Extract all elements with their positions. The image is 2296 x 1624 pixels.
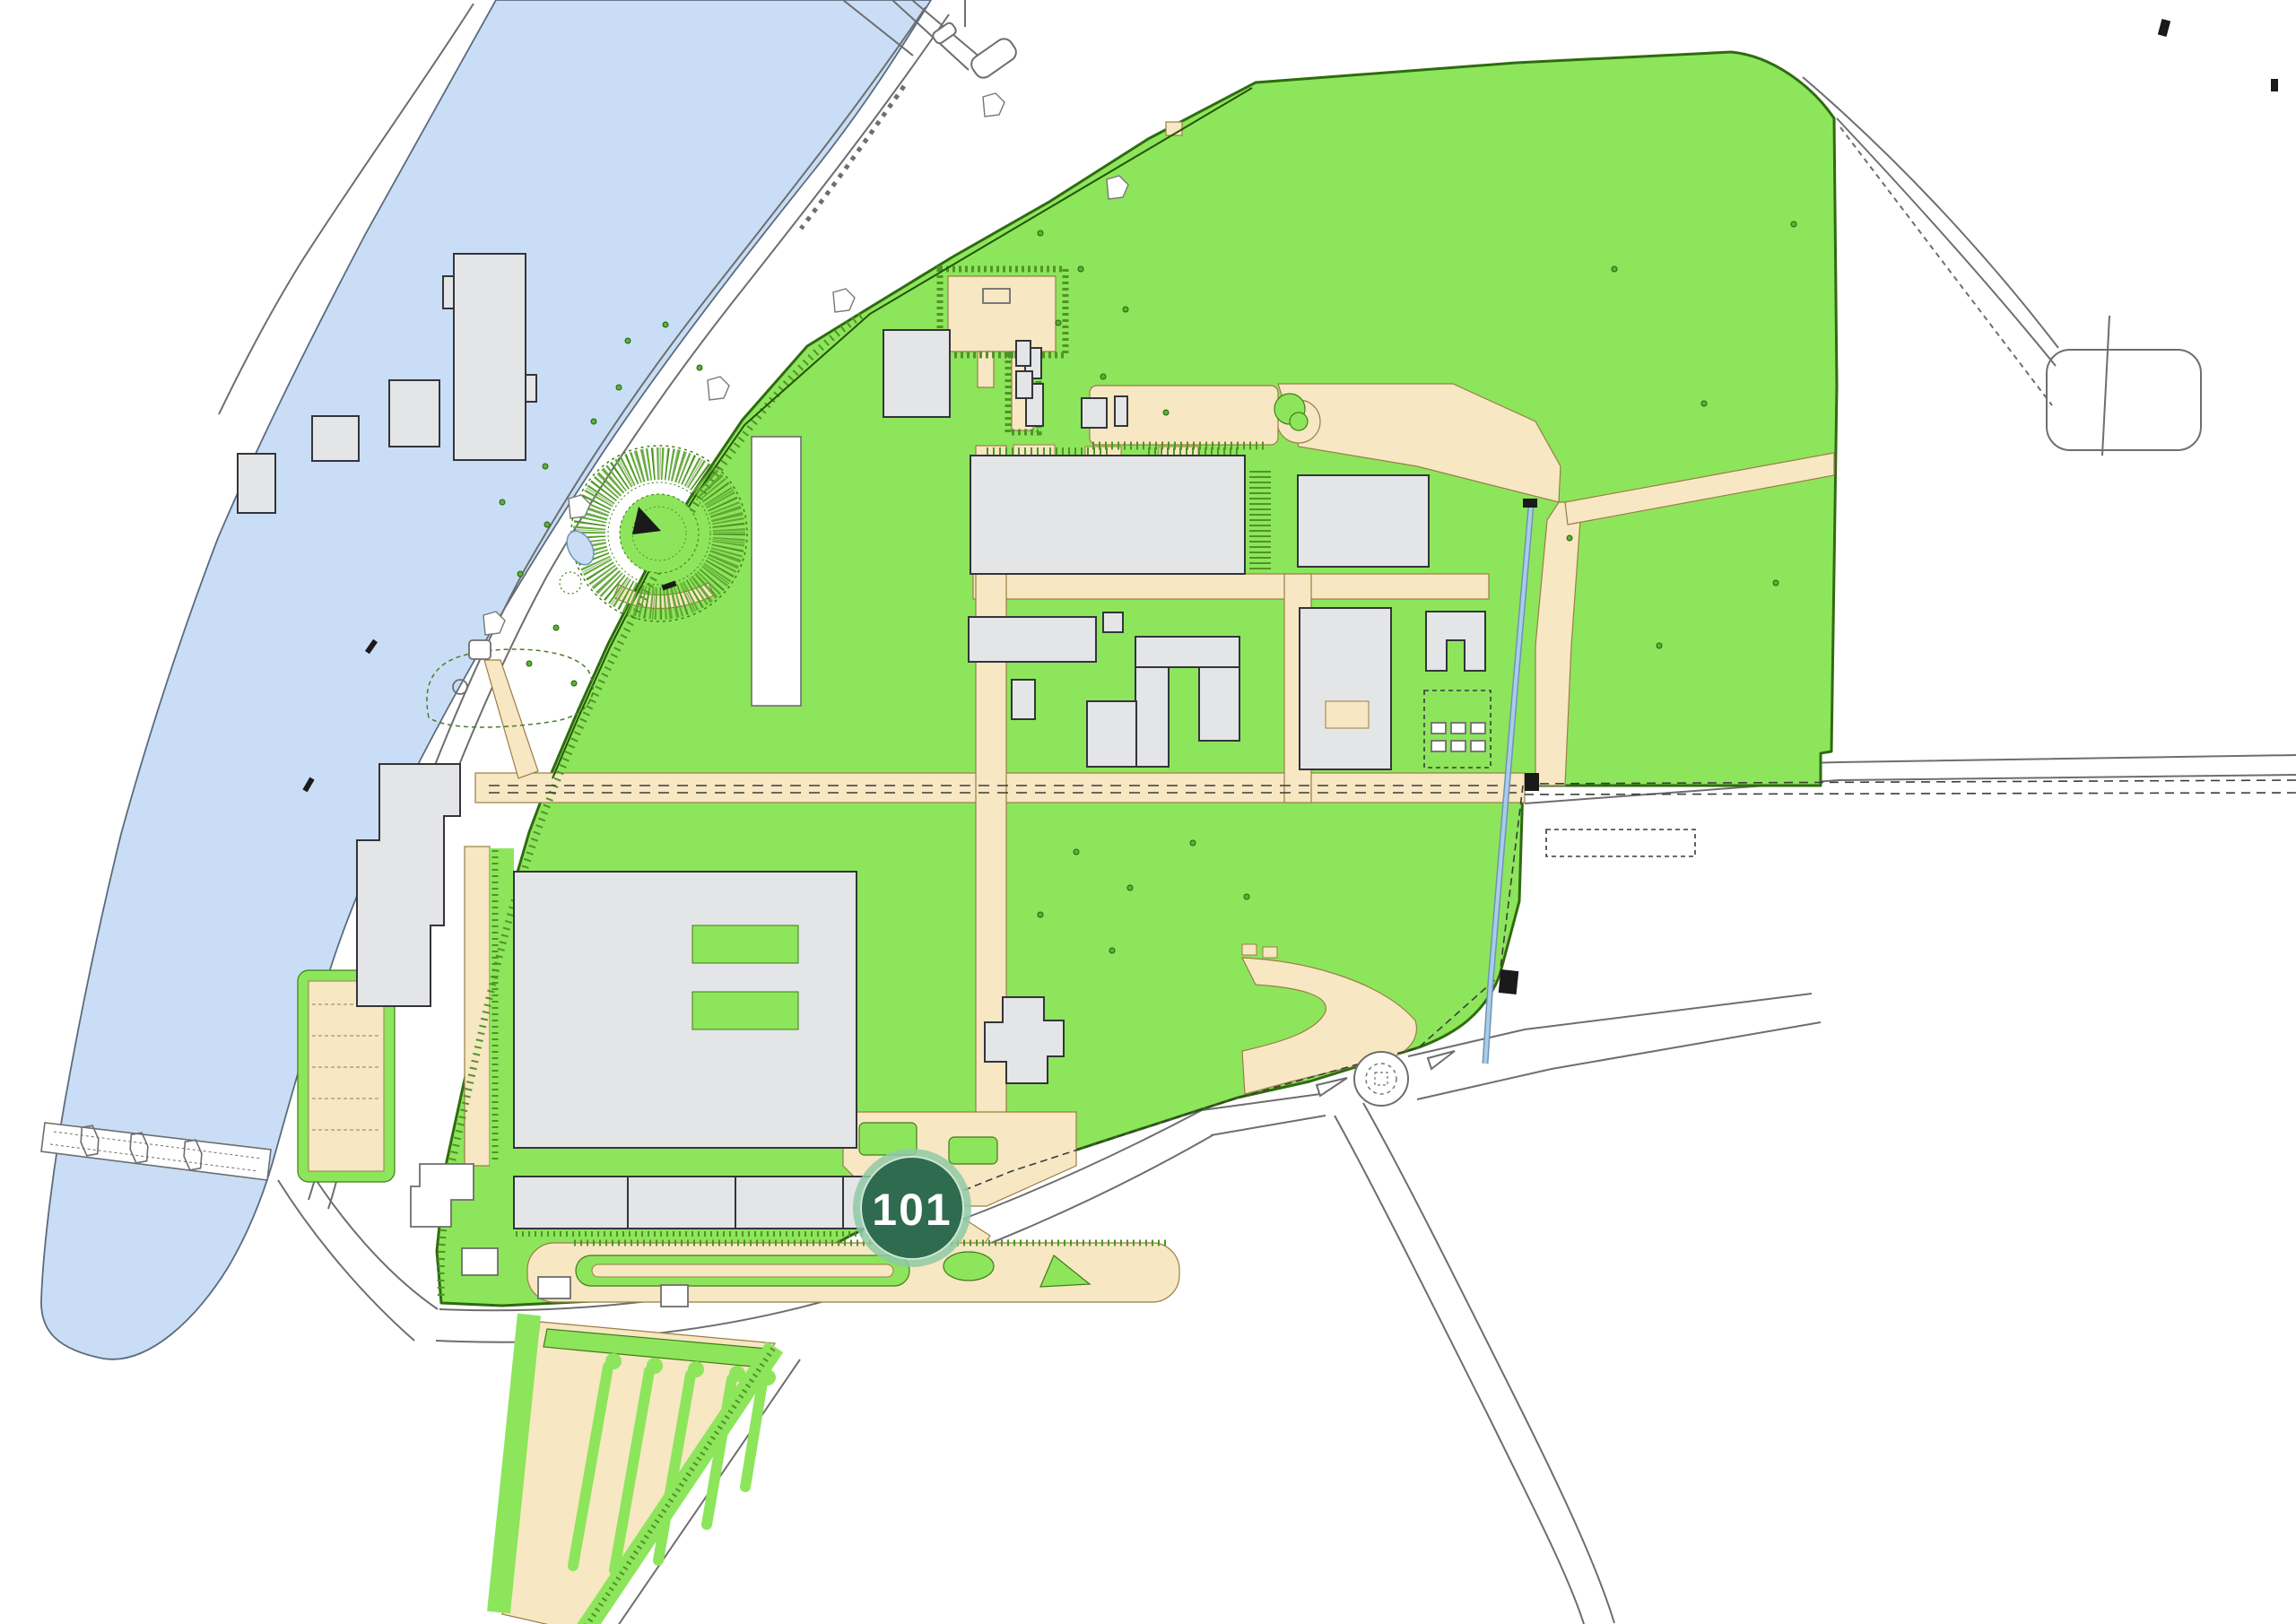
west-parking-lot xyxy=(309,981,384,1171)
ne-dashed-track xyxy=(1840,127,2052,405)
skylight-box xyxy=(1242,944,1257,955)
building xyxy=(389,380,439,447)
jetty-dolphin xyxy=(931,22,957,45)
cul-de-sac-island xyxy=(1290,413,1308,430)
building xyxy=(312,416,359,461)
culvert xyxy=(1499,969,1519,994)
site-plan-map: 101 xyxy=(0,0,2296,1624)
roundabout-approach-w xyxy=(1211,1116,1326,1135)
offsite-building xyxy=(462,1248,498,1275)
white-roads xyxy=(752,437,801,706)
bus-island-slot xyxy=(592,1264,893,1277)
building xyxy=(238,454,275,513)
sluice xyxy=(1523,499,1537,508)
building xyxy=(1012,680,1035,719)
main-hall-courtyard xyxy=(692,925,798,963)
building xyxy=(1135,637,1239,667)
bus-loop-blob xyxy=(944,1252,994,1281)
building xyxy=(1298,475,1429,567)
marker-label: 101 xyxy=(872,1185,952,1235)
building-101-marker[interactable]: 101 xyxy=(853,1149,971,1267)
offsite-building xyxy=(538,1277,570,1298)
building xyxy=(1199,667,1239,741)
ne-tick xyxy=(2102,316,2109,456)
concrete-road xyxy=(752,437,801,706)
ne-road-loop xyxy=(2047,350,2201,450)
building xyxy=(1115,396,1127,426)
garden-shed xyxy=(1016,341,1031,366)
walled-garden xyxy=(948,276,1056,352)
building xyxy=(454,254,526,460)
main-hall-courtyard xyxy=(692,992,798,1029)
gate-path xyxy=(484,660,538,778)
bridge-approach xyxy=(278,1180,414,1341)
roundabout-exit-s xyxy=(1335,1116,1584,1624)
apron-green-patch xyxy=(949,1137,997,1164)
roundabout-exit-s xyxy=(1363,1103,1614,1623)
planned-parking-outline xyxy=(1546,829,1695,856)
culvert xyxy=(1525,773,1539,791)
building xyxy=(526,375,536,402)
garden-shed xyxy=(1016,371,1032,398)
building-long-north xyxy=(970,456,1245,574)
building xyxy=(1082,398,1107,428)
site-plan-stage: 101 xyxy=(0,0,2296,1624)
building xyxy=(883,330,950,417)
building-east-block xyxy=(1300,608,1391,769)
offsite-building xyxy=(661,1285,688,1307)
building xyxy=(1087,701,1136,767)
mound-top xyxy=(620,494,699,573)
building-main-hall xyxy=(514,872,857,1148)
building-south-bar xyxy=(514,1177,906,1229)
dock-road-west xyxy=(465,847,490,1166)
roundabout-circle xyxy=(1354,1052,1408,1106)
jetty-head xyxy=(968,35,1020,81)
over-paving xyxy=(1326,701,1369,728)
ne-road xyxy=(1837,118,2056,366)
gatehouse xyxy=(469,640,491,659)
roundabout-approach-e xyxy=(1417,1022,1821,1099)
ne-road xyxy=(1803,77,2058,348)
traffic-island xyxy=(1317,1078,1347,1096)
building xyxy=(1103,612,1123,632)
skylight-box xyxy=(1263,947,1277,958)
building xyxy=(443,276,454,308)
east-block-court xyxy=(1326,701,1369,728)
building xyxy=(969,617,1096,662)
road-ew-upper xyxy=(973,574,1489,599)
traffic-island xyxy=(1428,1051,1455,1069)
tree-ring xyxy=(560,572,581,594)
building xyxy=(1135,667,1169,767)
